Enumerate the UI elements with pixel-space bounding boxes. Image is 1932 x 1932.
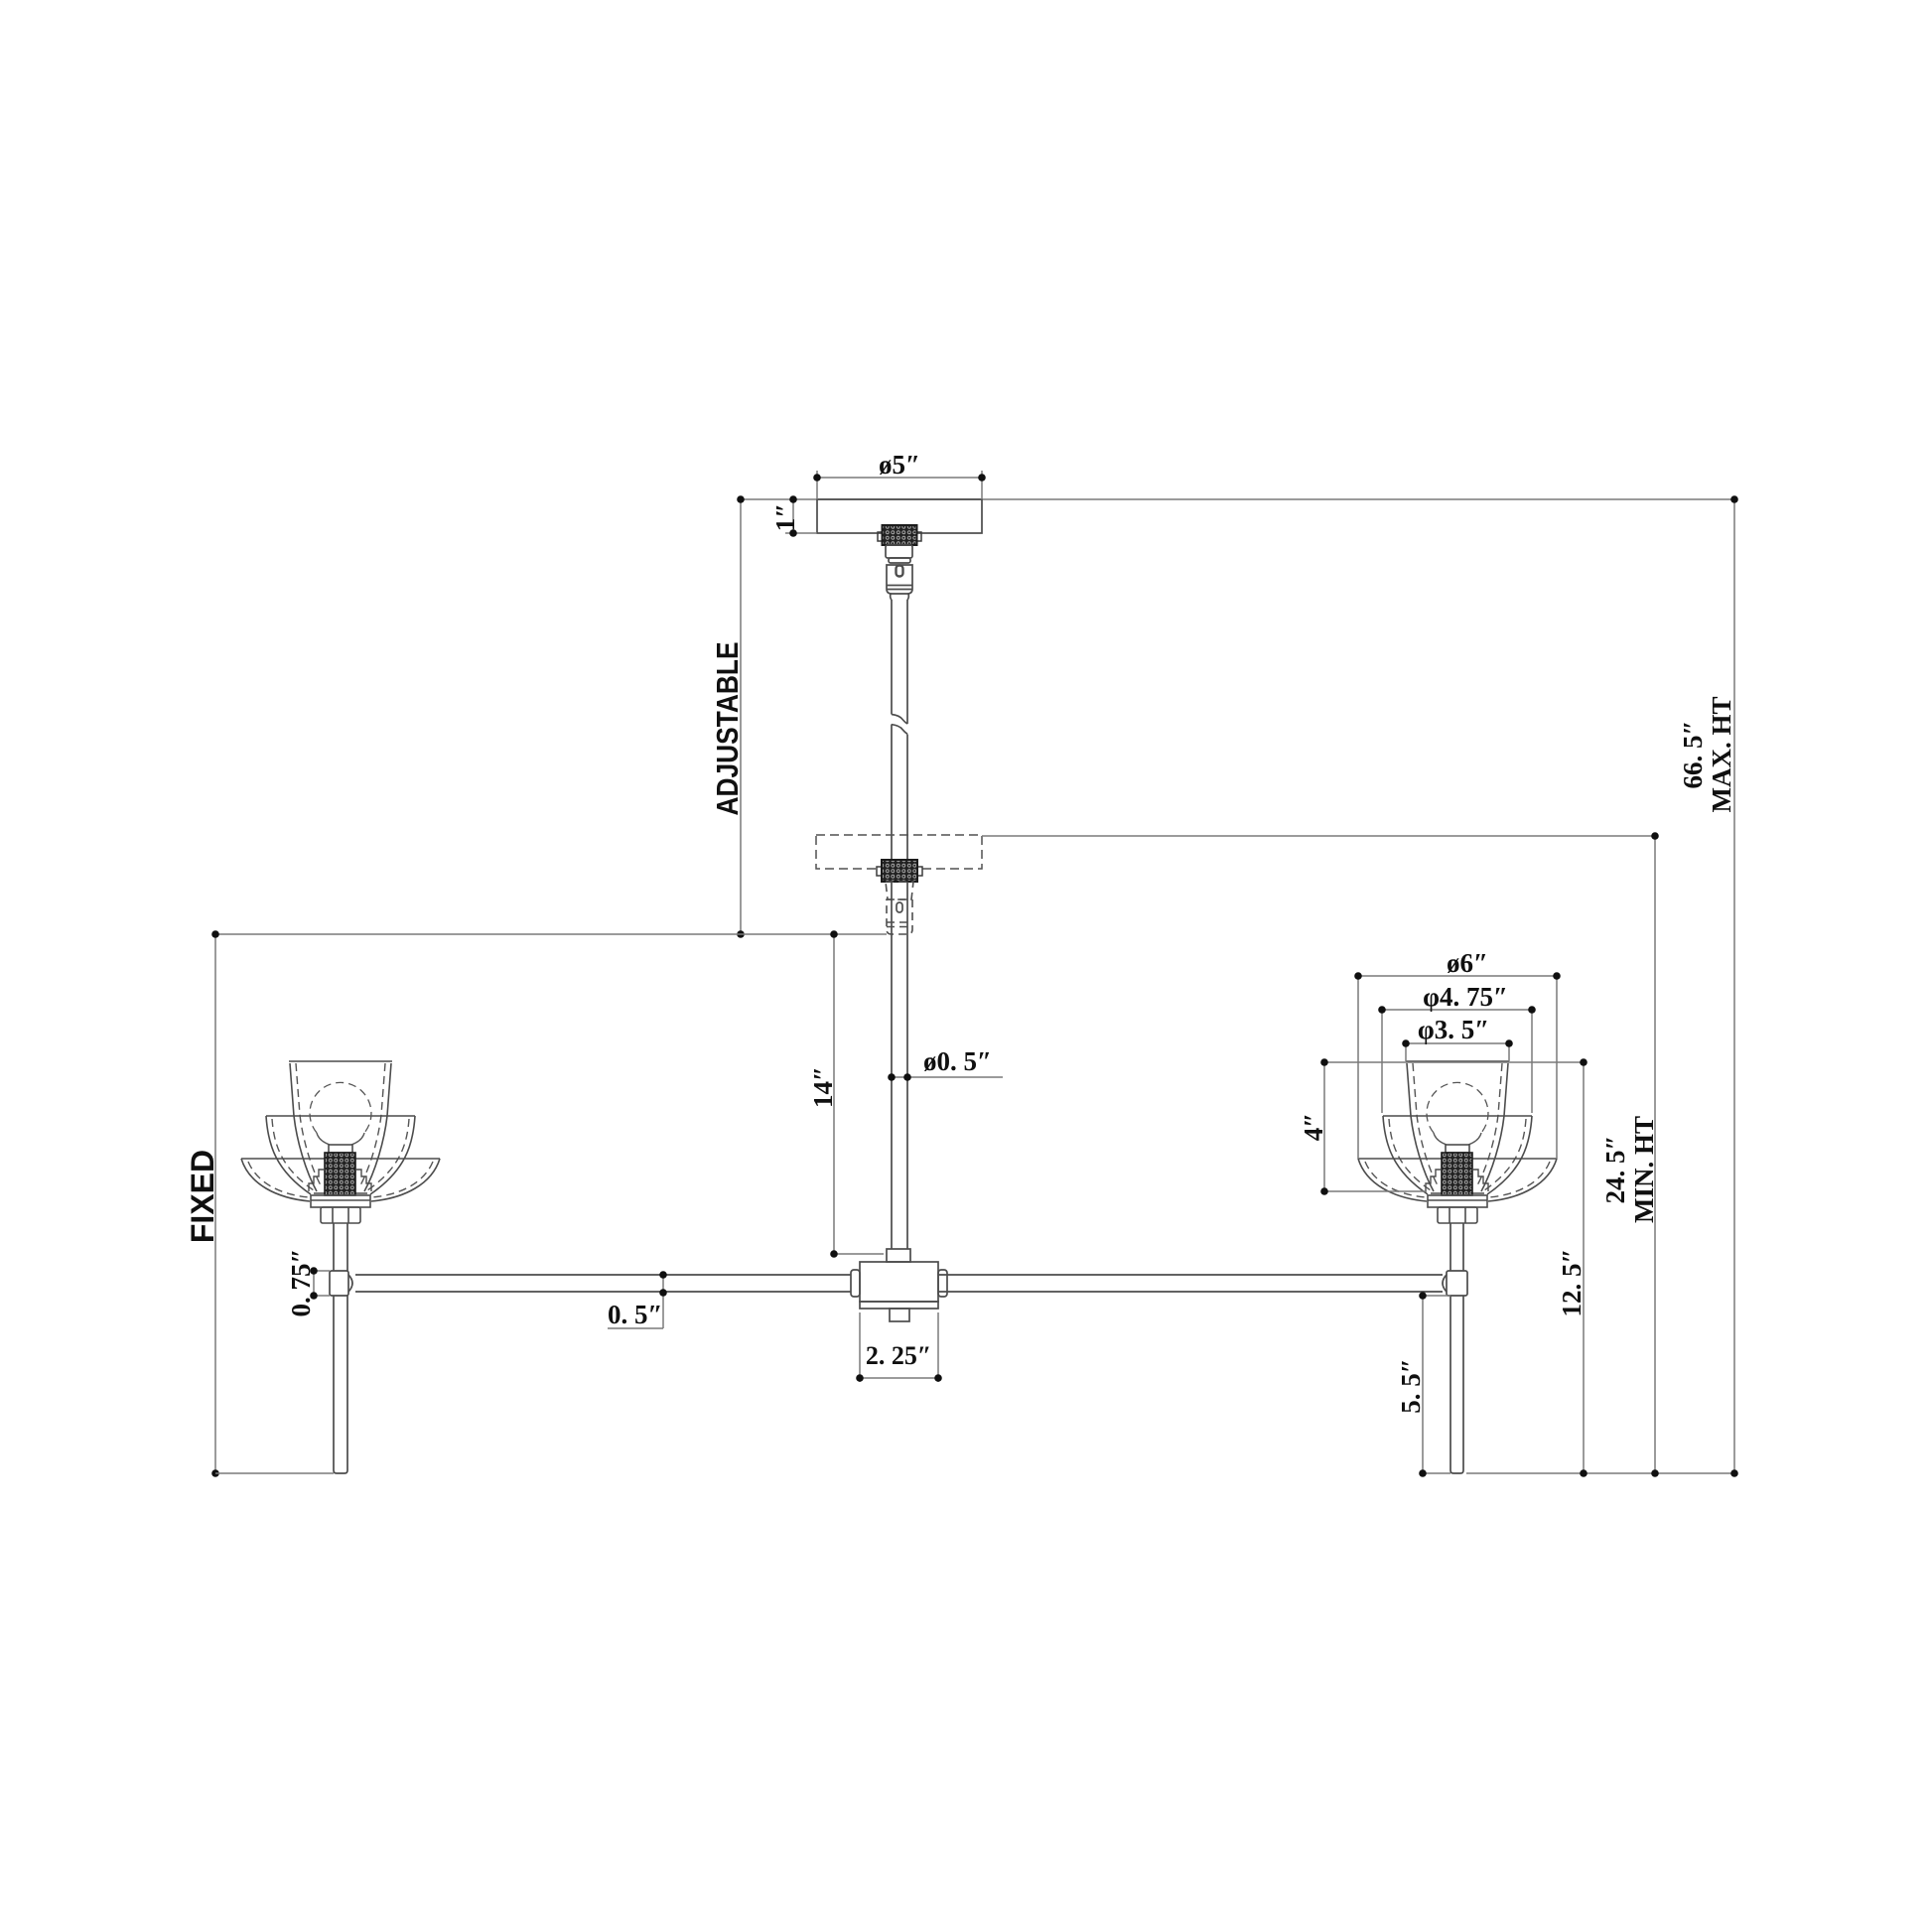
svg-text:ø0. 5″: ø0. 5″ [923,1046,992,1076]
svg-text:0. 5″: 0. 5″ [608,1300,662,1329]
svg-text:12. 5″: 12. 5″ [1557,1249,1587,1317]
svg-text:4″: 4″ [1299,1113,1328,1141]
svg-text:14″: 14″ [808,1066,838,1108]
svg-text:66. 5″: 66. 5″ [1678,721,1708,789]
svg-text:φ4. 75″: φ4. 75″ [1423,982,1508,1012]
svg-text:MIN. HT: MIN. HT [1629,1116,1659,1223]
svg-text:5. 5″: 5. 5″ [1396,1358,1426,1413]
svg-text:φ3. 5″: φ3. 5″ [1418,1015,1489,1044]
svg-text:ADJUSTABLE: ADJUSTABLE [711,641,745,815]
svg-text:24. 5″: 24. 5″ [1600,1136,1630,1204]
svg-text:1″: 1″ [770,503,800,531]
svg-text:FIXED: FIXED [185,1150,220,1243]
svg-text:ø6″: ø6″ [1447,948,1488,978]
svg-text:0. 75″: 0. 75″ [286,1249,316,1317]
svg-text:2. 25″: 2. 25″ [866,1341,931,1370]
svg-text:MAX. HT: MAX. HT [1707,697,1736,813]
svg-text:ø5″: ø5″ [879,450,920,480]
